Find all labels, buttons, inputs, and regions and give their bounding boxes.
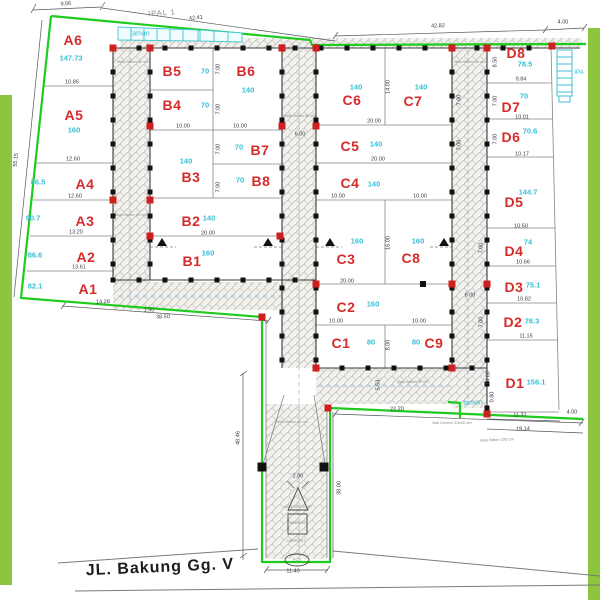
- hatched-walkways: [113, 38, 582, 559]
- ipa-tank: [557, 50, 572, 102]
- taman-planter-strip: [118, 27, 242, 42]
- site-plan-canvas: JL. Bakung Gg. V IPAL 1 taman taman IPA …: [0, 0, 600, 600]
- site-plan-drawing: [0, 0, 600, 600]
